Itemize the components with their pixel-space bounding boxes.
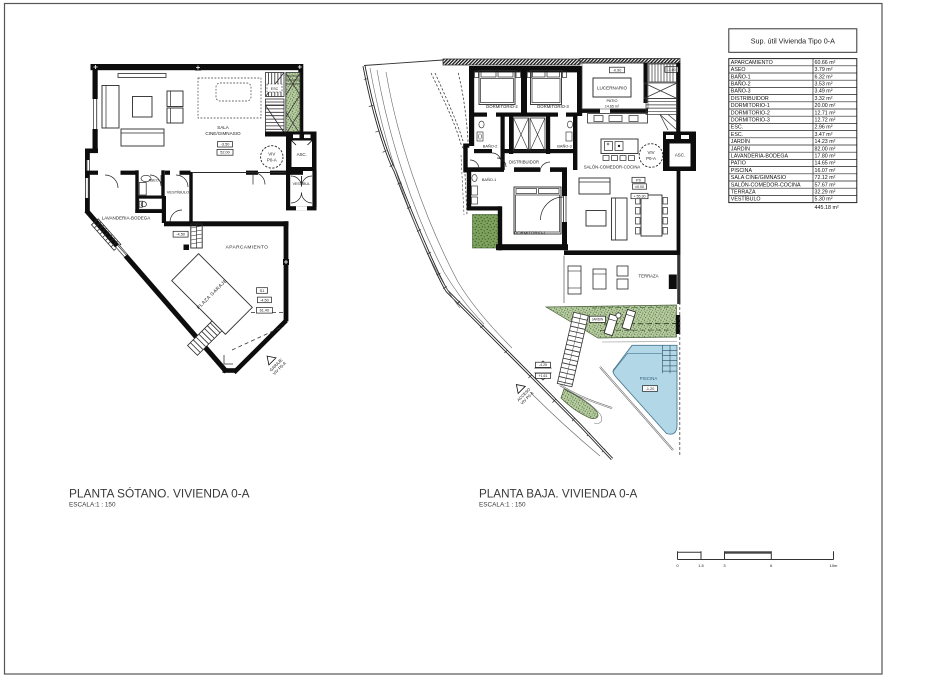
svg-text:BAÑO-3: BAÑO-3: [731, 88, 751, 95]
svg-text:LUCERNARIO: LUCERNARIO: [597, 86, 628, 91]
svg-text:Sup. útil Vivienda Tipo 0-A: Sup. útil Vivienda Tipo 0-A: [751, 37, 835, 46]
svg-text:445.18 m²: 445.18 m²: [815, 205, 839, 211]
svg-text:DORMITORIO-3: DORMITORIO-3: [731, 118, 770, 124]
svg-text:-4.50: -4.50: [260, 298, 269, 302]
svg-text:72.12 m²: 72.12 m²: [815, 175, 836, 181]
svg-text:ESCALA:1 : 150: ESCALA:1 : 150: [69, 502, 116, 509]
svg-text:PISCINA: PISCINA: [640, 376, 658, 381]
svg-text:BAÑO-2: BAÑO-2: [731, 81, 751, 88]
svg-text:JARDIN: JARDIN: [592, 317, 604, 321]
svg-text:14.23 m²: 14.23 m²: [815, 139, 836, 145]
svg-text:VESTÍBULO: VESTÍBULO: [731, 196, 761, 203]
svg-text:PLANTA SÓTANO. VIVIENDA 0-A: PLANTA SÓTANO. VIVIENDA 0-A: [69, 486, 250, 501]
svg-text:3.49 m²: 3.49 m²: [815, 89, 833, 95]
svg-text:12.72 m²: 12.72 m²: [815, 118, 836, 124]
svg-text:ASEO: ASEO: [148, 179, 159, 183]
svg-text:PATIO: PATIO: [606, 98, 617, 103]
svg-text:-3.50: -3.50: [221, 143, 230, 147]
svg-text:14.65 m²: 14.65 m²: [605, 105, 620, 109]
svg-text:APARCAMIENTO: APARCAMIENTO: [731, 60, 773, 66]
svg-text:5.30 m²: 5.30 m²: [815, 197, 833, 203]
svg-text:6.32 m²: 6.32 m²: [815, 74, 833, 80]
svg-text:DISTRIBUIDOR: DISTRIBUIDOR: [731, 96, 769, 102]
svg-text:ESC.: ESC.: [731, 125, 743, 131]
svg-text:VIV: VIV: [647, 150, 654, 155]
svg-text:P0-A: P0-A: [646, 156, 656, 161]
svg-text:2.96 m²: 2.96 m²: [815, 125, 833, 131]
svg-text:BAÑO-3: BAÑO-3: [557, 144, 572, 149]
svg-text:PATIO: PATIO: [731, 161, 746, 167]
svg-text:3.47 m²: 3.47 m²: [815, 132, 833, 138]
svg-text:TERRAZA: TERRAZA: [731, 190, 756, 196]
svg-text:+ 55.30: + 55.30: [633, 194, 645, 198]
svg-text:DORMITORIO-2: DORMITORIO-2: [486, 104, 518, 109]
svg-text:ESC: ESC: [271, 87, 279, 91]
svg-text:+1.61: +1.61: [539, 374, 548, 378]
svg-text:61.40: 61.40: [260, 309, 270, 313]
svg-text:16.07 m²: 16.07 m²: [815, 168, 836, 174]
svg-text:DORMITORIO-1: DORMITORIO-1: [514, 231, 546, 236]
svg-text:52.00: 52.00: [220, 151, 230, 155]
svg-text:3.79 m²: 3.79 m²: [815, 67, 833, 73]
svg-text:17.80 m²: 17.80 m²: [815, 154, 836, 160]
svg-text:APARCAMIENTO: APARCAMIENTO: [226, 245, 269, 251]
svg-text:P0-A: P0-A: [267, 158, 277, 163]
svg-text:SALA CINE/GIMNASIO: SALA CINE/GIMNASIO: [731, 175, 786, 181]
svg-text:-1.80: -1.80: [667, 68, 675, 72]
svg-text:3.53 m²: 3.53 m²: [815, 82, 833, 88]
svg-text:BAÑO-1: BAÑO-1: [482, 177, 497, 182]
svg-text:20.00 m²: 20.00 m²: [815, 103, 836, 109]
svg-text:12.71 m²: 12.71 m²: [815, 110, 836, 116]
svg-text:3.32 m²: 3.32 m²: [815, 96, 833, 102]
svg-text:JARDÍN: JARDÍN: [731, 145, 750, 152]
svg-text:60.66 m²: 60.66 m²: [815, 60, 836, 66]
svg-text:PISCINA: PISCINA: [731, 168, 753, 174]
svg-text:14.65 m²: 14.65 m²: [815, 161, 836, 167]
svg-text:82.00 m²: 82.00 m²: [815, 146, 836, 152]
svg-text:1.5: 1.5: [698, 563, 704, 568]
svg-text:BAÑO-1: BAÑO-1: [731, 73, 751, 80]
svg-text:ASC.: ASC.: [675, 153, 685, 158]
svg-text:10m: 10m: [830, 563, 838, 568]
svg-text:SALA: SALA: [217, 125, 230, 130]
svg-text:LAVANDERIA-BODEGA: LAVANDERIA-BODEGA: [102, 216, 151, 221]
svg-text:SALÓN-COMEDOR-COCINA: SALÓN-COMEDOR-COCINA: [731, 181, 801, 188]
svg-text:CINE/GIMNASIO: CINE/GIMNASIO: [205, 131, 241, 136]
svg-text:57.67 m²: 57.67 m²: [815, 182, 836, 188]
svg-text:JARDÍN: JARDÍN: [731, 138, 750, 145]
svg-text:±0.00: ±0.00: [635, 185, 644, 189]
svg-text:BAÑO-2: BAÑO-2: [483, 144, 498, 149]
svg-text:P0: P0: [636, 178, 641, 182]
svg-text:VIV: VIV: [268, 152, 275, 157]
svg-text:-0.90: -0.90: [613, 68, 622, 72]
svg-text:DORMITORIO-2: DORMITORIO-2: [731, 110, 770, 116]
svg-text:DORMITORIO-3: DORMITORIO-3: [537, 104, 569, 109]
svg-text:S1: S1: [260, 289, 265, 293]
svg-text:32.29 m²: 32.29 m²: [815, 190, 836, 196]
svg-text:ESC.: ESC.: [731, 132, 743, 138]
svg-text:PLANTA BAJA. VIVIENDA 0-A: PLANTA BAJA. VIVIENDA 0-A: [479, 488, 637, 501]
svg-text:ASC.: ASC.: [297, 152, 307, 157]
svg-text:SALÓN-COMEDOR-COCINA: SALÓN-COMEDOR-COCINA: [584, 165, 641, 170]
svg-text:VESTÍBULO: VESTÍBULO: [167, 190, 189, 195]
svg-text:ESCALA:1 : 150: ESCALA:1 : 150: [479, 502, 526, 509]
svg-text:ASEO: ASEO: [731, 67, 746, 73]
svg-text:-1.20: -1.20: [646, 387, 655, 391]
svg-text:DISTRIBUIDOR: DISTRIBUIDOR: [509, 160, 539, 165]
svg-text:-4.25: -4.25: [539, 363, 547, 367]
svg-text:-4.50: -4.50: [176, 233, 185, 237]
svg-text:VESTÍBUL: VESTÍBUL: [293, 182, 310, 186]
svg-text:TERRAZA: TERRAZA: [638, 274, 658, 279]
svg-text:LAVANDERIA-BODEGA: LAVANDERIA-BODEGA: [731, 154, 789, 160]
svg-text:DORMITORIO-1: DORMITORIO-1: [731, 103, 770, 109]
